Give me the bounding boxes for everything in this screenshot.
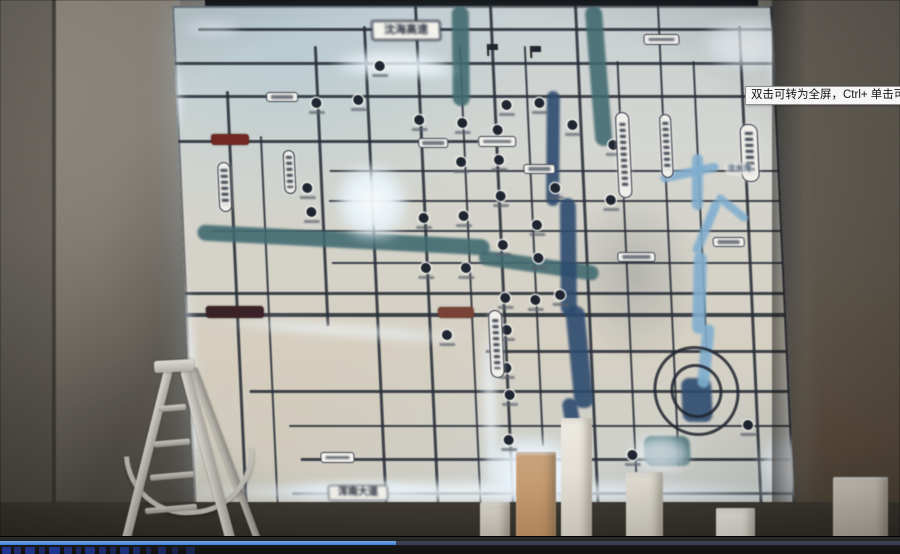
poi-label-smudge xyxy=(416,226,432,229)
road-label-box xyxy=(320,452,354,463)
watermark-glyph-fragment xyxy=(14,547,21,554)
flag-marker xyxy=(487,44,490,56)
poi-marker-icon xyxy=(421,263,431,273)
poi-marker-icon xyxy=(458,211,468,221)
led-glow-highlight xyxy=(629,434,691,474)
river-segment xyxy=(692,154,703,210)
road-label-box xyxy=(712,237,744,247)
poi-marker-icon xyxy=(500,293,510,303)
poi-marker-icon xyxy=(606,195,616,205)
watermark-glyph-fragment xyxy=(99,547,106,554)
poi-marker-icon xyxy=(743,420,753,430)
flag-marker xyxy=(530,46,533,58)
poi-label-smudge xyxy=(740,433,756,436)
poi-marker-icon xyxy=(302,183,312,193)
poi-label-smudge xyxy=(529,233,545,236)
watermark-glyph-fragment xyxy=(120,547,129,554)
poi-label-smudge xyxy=(531,266,547,269)
road-label-capsule xyxy=(217,162,232,212)
red-road-label xyxy=(211,134,249,145)
road-label-box xyxy=(418,138,448,148)
poi-marker-icon xyxy=(534,98,544,108)
poi-marker-icon xyxy=(501,100,511,110)
watermark-glyph-fragment xyxy=(25,547,35,554)
poi-label-smudge xyxy=(491,168,507,171)
red-road-label xyxy=(438,307,474,318)
progress-fill xyxy=(0,541,396,545)
poi-marker-icon xyxy=(504,390,514,400)
watermark-glyph-fragment xyxy=(76,547,81,554)
road-label-box xyxy=(478,136,516,147)
watermark-glyph-fragment xyxy=(146,547,151,554)
watermark-glyph-fragment xyxy=(39,547,45,554)
poi-marker-icon xyxy=(498,240,508,250)
poi-marker-icon xyxy=(627,450,637,460)
road-label-box xyxy=(617,252,655,262)
step-ladder xyxy=(110,360,285,554)
led-glow-highlight xyxy=(397,61,457,77)
poi-marker-icon xyxy=(457,118,467,128)
poi-marker-icon xyxy=(311,98,321,108)
watermark-glyph-fragment xyxy=(172,547,178,554)
poi-marker-icon xyxy=(456,157,466,167)
player-fullscreen-tooltip: 双击可转为全屏，Ctrl+ 单击可转为 xyxy=(745,86,900,105)
red-road-label xyxy=(206,306,265,318)
poi-marker-icon xyxy=(414,115,424,125)
led-glow-highlight xyxy=(181,20,242,36)
road-line xyxy=(198,28,773,31)
poi-label-smudge xyxy=(418,276,434,279)
poi-marker-icon xyxy=(532,220,542,230)
poi-label-smudge xyxy=(502,403,518,406)
poi-marker-icon xyxy=(442,330,452,340)
avenue-label: 浑南大道 xyxy=(328,485,389,501)
poi-label-smudge xyxy=(372,74,388,77)
watermark-glyph-fragment xyxy=(158,547,166,554)
poi-marker-icon xyxy=(353,95,363,105)
poi-marker-icon xyxy=(567,120,577,130)
poi-marker-icon xyxy=(461,263,471,273)
road-label-capsule xyxy=(659,114,674,178)
poi-marker-icon xyxy=(503,435,513,445)
watermark-glyph-fragment xyxy=(110,547,116,554)
photo-scene: 沈海高速 浑南大道 沈水湾 xyxy=(0,0,900,554)
highway-label: 沈海高速 xyxy=(371,20,442,41)
poi-label-smudge xyxy=(532,111,548,114)
map-right-edge-shadow xyxy=(772,0,806,554)
watermark-glyph-fragment xyxy=(49,547,60,554)
river-segment xyxy=(452,6,470,106)
player-control-bar[interactable] xyxy=(0,536,900,554)
poi-label-smudge xyxy=(552,303,568,306)
poi-marker-icon xyxy=(495,191,505,201)
video-frame[interactable]: 沈海高速 浑南大道 沈水湾 双击可转为全屏，Ctrl+ 单击可转为 xyxy=(0,0,900,554)
poi-label-smudge xyxy=(309,111,325,114)
poi-marker-icon xyxy=(501,325,511,335)
led-glow-highlight xyxy=(334,164,409,240)
poi-label-smudge xyxy=(300,196,316,199)
road-label-box xyxy=(523,164,555,174)
road-label-capsule xyxy=(615,112,633,198)
poi-marker-icon xyxy=(418,213,428,223)
wall-seam xyxy=(52,0,56,520)
poi-label-smudge xyxy=(412,128,428,131)
poi-label-smudge xyxy=(548,196,564,199)
poi-marker-icon xyxy=(494,155,504,165)
poi-marker-icon xyxy=(533,253,543,263)
poi-label-smudge xyxy=(456,224,472,227)
road-line xyxy=(486,350,788,353)
poi-label-smudge xyxy=(458,276,474,279)
road-label-box xyxy=(266,92,298,102)
watermark-glyph-fragment xyxy=(133,547,140,554)
road-label-capsule xyxy=(283,150,297,194)
poi-label-smudge xyxy=(501,448,517,451)
poi-label-smudge xyxy=(455,131,471,134)
poi-label-smudge xyxy=(304,220,320,223)
poi-label-smudge xyxy=(625,463,641,466)
poi-marker-icon xyxy=(530,295,540,305)
model-block-pillar xyxy=(561,418,592,554)
poi-label-smudge xyxy=(498,306,514,309)
progress-track[interactable] xyxy=(0,541,900,545)
poi-label-smudge xyxy=(493,204,509,207)
poi-label-smudge xyxy=(528,308,544,311)
lake-label: 沈水湾 xyxy=(725,163,754,175)
ladder-step xyxy=(158,404,186,412)
poi-label-smudge xyxy=(495,253,511,256)
ladder-top-cap xyxy=(154,359,195,373)
poi-label-smudge xyxy=(565,133,581,136)
poi-label-smudge xyxy=(603,208,619,211)
poi-marker-icon xyxy=(550,183,560,193)
poi-marker-icon xyxy=(492,125,502,135)
ladder-step xyxy=(154,438,190,447)
watermark-glyph-fragment xyxy=(85,547,95,554)
poi-marker-icon xyxy=(374,61,384,71)
poi-label-smudge xyxy=(453,170,469,173)
poi-label-smudge xyxy=(439,343,455,346)
poi-label-smudge xyxy=(499,113,515,116)
watermark-glyph-fragment xyxy=(2,547,11,554)
watermark-glyph-fragment xyxy=(64,547,72,554)
road-line xyxy=(175,62,775,65)
river-segment xyxy=(715,193,750,224)
poi-marker-icon xyxy=(306,207,316,217)
road-label-box xyxy=(643,34,679,45)
river-segment xyxy=(692,252,707,335)
poi-marker-icon xyxy=(555,290,565,300)
watermark-glyph-fragment xyxy=(186,547,195,554)
poi-label-smudge xyxy=(351,108,367,111)
